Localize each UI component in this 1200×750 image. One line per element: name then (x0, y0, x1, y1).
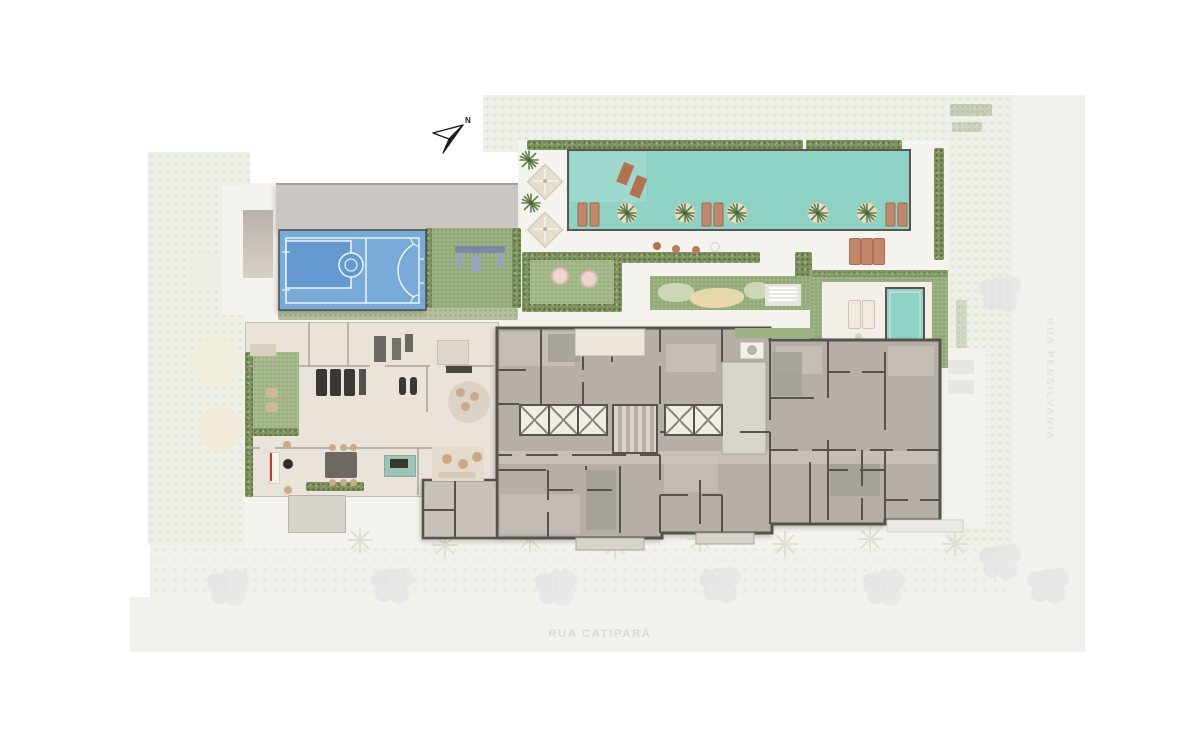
neighbor-tree (185, 250, 225, 292)
garden-steps-pad (765, 284, 801, 306)
side-table (281, 395, 287, 401)
armchair (266, 388, 278, 398)
exercise-bike (410, 377, 417, 395)
hedge (512, 228, 521, 308)
dining-chair (350, 444, 357, 451)
site-plan: N RUA CATIPARÁ RUA PENSILVANIA (0, 0, 1200, 750)
lounger (873, 238, 885, 265)
stool (283, 441, 291, 449)
elevator-box (664, 404, 695, 436)
elevator-box (693, 404, 723, 436)
gym-machine (405, 334, 413, 352)
stool (284, 486, 292, 494)
treadmill (316, 369, 327, 396)
reception-desk-accent (270, 453, 272, 481)
hedge (952, 122, 982, 132)
pouf (461, 402, 470, 411)
round-table (458, 459, 468, 469)
elevator-box (548, 404, 579, 436)
playground-post (498, 253, 503, 268)
terrace-east (940, 348, 985, 528)
lounger (849, 238, 861, 265)
parked-pad (948, 380, 974, 394)
pouf (580, 270, 598, 288)
desk-chair (283, 459, 293, 469)
dining-table (325, 452, 357, 478)
sidewalk-bottom (150, 545, 1013, 597)
neighbor-tree (190, 335, 242, 387)
dining-chair (340, 444, 347, 451)
playground-bar (455, 246, 505, 253)
parked-pad (948, 360, 974, 374)
treadmill (330, 369, 341, 396)
pouf (456, 388, 465, 397)
cable-machine (446, 366, 472, 373)
storage-block (250, 344, 276, 356)
stairwell (612, 404, 658, 454)
dining-chair (329, 444, 336, 451)
small-pool-deck (822, 282, 932, 362)
lounger (848, 300, 861, 329)
playground-slide (471, 255, 481, 272)
north-arrow-icon: N (433, 116, 471, 153)
street-label-catipara: RUA CATIPARÁ (500, 628, 700, 640)
dining-chair (350, 479, 357, 486)
gym-machine (374, 336, 386, 362)
pouf (470, 392, 479, 401)
deck-table (710, 242, 720, 252)
hedge (950, 104, 992, 116)
round-table (442, 454, 452, 464)
playground-post (457, 253, 462, 268)
north-label: N (465, 116, 471, 125)
dining-chair (329, 479, 336, 486)
lounger (861, 238, 873, 265)
lounge-rug-circle (448, 381, 490, 423)
pouf-lawn (530, 260, 614, 304)
deck-table (692, 246, 700, 254)
hedge (806, 140, 902, 150)
weight-rack (359, 369, 366, 395)
deck-table (672, 245, 680, 253)
dining-chair (340, 479, 347, 486)
elevator-box (519, 404, 550, 436)
round-table (472, 452, 482, 462)
hedge-below-court (278, 308, 518, 320)
elevator-box (577, 404, 608, 436)
lounger (862, 300, 875, 329)
neighbor-tree (198, 405, 242, 453)
access-ramp (243, 210, 273, 278)
hedge (245, 352, 253, 497)
deck-table (855, 333, 862, 340)
garage-roof (276, 183, 518, 230)
street-bottom (130, 597, 1085, 652)
treadmill (344, 369, 355, 396)
pouf (551, 267, 569, 285)
hedge (812, 270, 948, 277)
gym-room (437, 340, 469, 365)
hedge (934, 148, 944, 260)
hedge (253, 428, 299, 436)
armchair (266, 402, 278, 412)
hedge (527, 140, 803, 150)
deck-table (653, 242, 661, 250)
garden-bush (658, 283, 694, 302)
hedge (617, 252, 760, 263)
sofa (438, 472, 476, 478)
gym-machine (392, 338, 401, 360)
club-porch (288, 495, 346, 533)
exercise-bike (399, 377, 406, 395)
bar-top (390, 459, 408, 468)
street-label-pensilvania: RUA PENSILVANIA (1044, 318, 1055, 448)
